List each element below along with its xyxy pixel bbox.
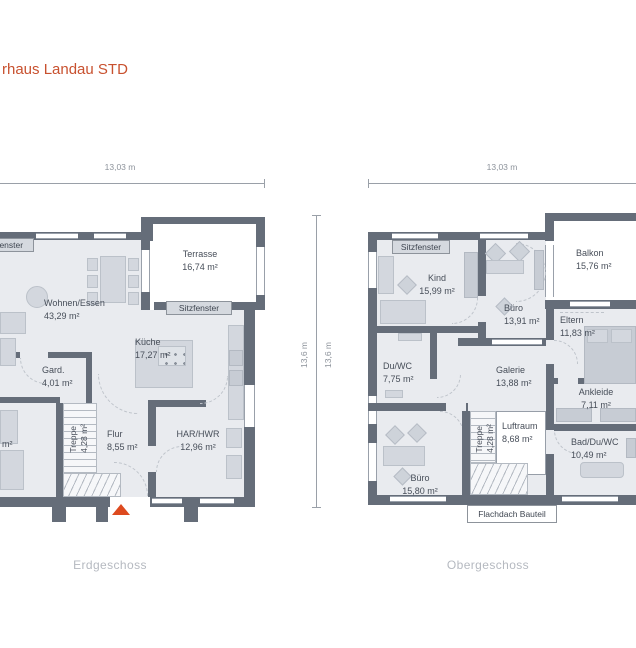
room-area-treppe-og: 4,28 m² <box>485 424 495 453</box>
og-window <box>368 252 377 288</box>
og-window <box>392 233 438 239</box>
room-label-har-hwr: HAR/HWR 12,96 m² <box>160 428 236 453</box>
appliance <box>229 370 243 386</box>
eg-wall <box>141 240 150 250</box>
room-label-kind: Kind 15,99 m² <box>412 272 462 297</box>
og-door-opening <box>546 340 554 364</box>
desk <box>378 256 394 294</box>
sitzfenster-label-terrace: Sitzfenster <box>166 301 232 315</box>
room-label-kueche: Küche 17,27 m² <box>135 336 171 361</box>
og-door-opening <box>546 430 554 454</box>
eg-terrace-window <box>256 247 265 295</box>
pillow <box>611 329 632 343</box>
washbasin <box>385 390 403 398</box>
og-balcony-door <box>545 271 554 297</box>
eg-door-opening <box>148 446 156 472</box>
room-label-luftraum: Luftraum 8,68 m² <box>502 420 538 445</box>
og-balcony-door <box>545 245 554 271</box>
og-window <box>368 443 377 481</box>
og-wall <box>462 411 470 497</box>
room-label-treppe-og: Treppe <box>474 426 484 453</box>
wardrobe <box>464 252 478 298</box>
dim-tick <box>312 215 321 216</box>
og-balcony-wall <box>545 213 554 241</box>
room-label-wohnen-essen: Wohnen/Essen 43,29 m² <box>44 297 105 322</box>
bed <box>380 300 426 324</box>
flachdach-bauteil-label: Flachdach Bauteil <box>467 505 557 523</box>
room-label-bad-du-wc: Bad/Du/WC 10,49 m² <box>571 436 619 461</box>
og-door-opening <box>446 403 466 411</box>
dim-height-obergeschoss: 13,6 m <box>323 342 333 368</box>
cabinet <box>0 450 24 490</box>
dim-height-erdgeschoss: 13,6 m <box>299 342 309 368</box>
dim-line-vertical <box>316 215 317 508</box>
og-interior-window <box>492 339 542 345</box>
eg-wall <box>56 403 63 497</box>
page-title: rhaus Landau STD <box>2 61 128 78</box>
caption-obergeschoss: Obergeschoss <box>428 558 548 572</box>
chair <box>87 275 98 288</box>
room-label-ankleide: Ankleide 7,11 m² <box>566 386 626 411</box>
og-window <box>562 496 618 502</box>
eg-wall <box>0 397 60 403</box>
eg-window <box>244 385 255 427</box>
og-window <box>570 301 610 307</box>
room-label-treppe-eg: Treppe <box>68 426 78 453</box>
eg-window <box>152 498 182 504</box>
dim-tick <box>312 507 321 508</box>
chair <box>87 258 98 271</box>
washbasin <box>626 438 636 458</box>
eg-wall <box>148 400 206 407</box>
chair <box>128 292 139 305</box>
desk <box>486 260 524 274</box>
og-door-opening <box>558 378 578 384</box>
oven <box>229 350 243 366</box>
dim-width-obergeschoss: 13,03 m <box>442 162 562 172</box>
og-wall <box>546 300 554 497</box>
appliance <box>226 455 242 479</box>
eg-wall <box>86 352 92 403</box>
eg-stairs-winder <box>63 473 121 497</box>
room-label-buero-1: Büro 13,91 m² <box>504 302 540 327</box>
eg-wall-stub <box>52 507 66 522</box>
og-stairs-winder <box>470 463 528 495</box>
eg-wall <box>141 292 150 310</box>
eg-terrace-door-window <box>141 250 150 292</box>
room-label-flur: Flur 8,55 m² <box>107 428 138 453</box>
floor-plan-sheet: rhaus Landau STD 13,03 m 13,03 m 13,6 m … <box>0 0 636 648</box>
og-wall <box>430 333 437 379</box>
room-area-treppe-eg: 4,28 m² <box>79 424 89 453</box>
room-label-gard: Gard. 4,01 m² <box>42 364 73 389</box>
room-label-buero-2: Büro 15,80 m² <box>392 472 448 497</box>
room-label-eltern: Eltern 11,83 m² <box>560 314 595 339</box>
sitzfenster-label-og: Sitzfenster <box>392 240 450 254</box>
og-window <box>480 233 528 239</box>
sitzfenster-label-left: Sitzfenster <box>0 238 34 252</box>
room-label-terrasse: Terrasse 16,74 m² <box>160 248 240 273</box>
bathtub <box>580 462 624 478</box>
dim-tick <box>368 179 369 188</box>
og-wall <box>554 424 636 431</box>
og-wall <box>377 326 486 333</box>
room-label-galerie: Galerie 13,88 m² <box>496 364 532 389</box>
og-door-opening <box>478 296 486 322</box>
eg-wall-stub <box>96 497 108 522</box>
entrance-arrow-icon <box>112 504 130 515</box>
shelf <box>534 250 544 290</box>
eg-terrace-wall <box>141 217 265 224</box>
dim-line-horizontal-og <box>368 183 636 184</box>
chair <box>128 275 139 288</box>
sofa <box>0 338 16 366</box>
dim-line-horizontal-eg <box>0 183 265 184</box>
eg-window <box>94 233 126 239</box>
caption-erdgeschoss: Erdgeschoss <box>50 558 170 572</box>
desk <box>383 446 425 466</box>
eg-window <box>200 498 234 504</box>
room-label-du-wc: Du/WC 7,75 m² <box>383 360 414 385</box>
og-balcony-wall <box>545 213 636 221</box>
eg-terrace-wall <box>256 217 265 247</box>
sight-line <box>560 312 604 313</box>
room-label-cut-fragment: m² <box>2 438 13 451</box>
eg-wall-stub <box>184 497 198 522</box>
shelf <box>398 333 422 341</box>
dim-tick <box>264 179 265 188</box>
room-label-balkon: Balkon 15,76 m² <box>576 247 612 272</box>
dim-width-erdgeschoss: 13,03 m <box>60 162 180 172</box>
eg-window <box>36 233 78 239</box>
chair <box>128 258 139 271</box>
dining-table <box>100 256 126 303</box>
sofa <box>0 312 26 334</box>
